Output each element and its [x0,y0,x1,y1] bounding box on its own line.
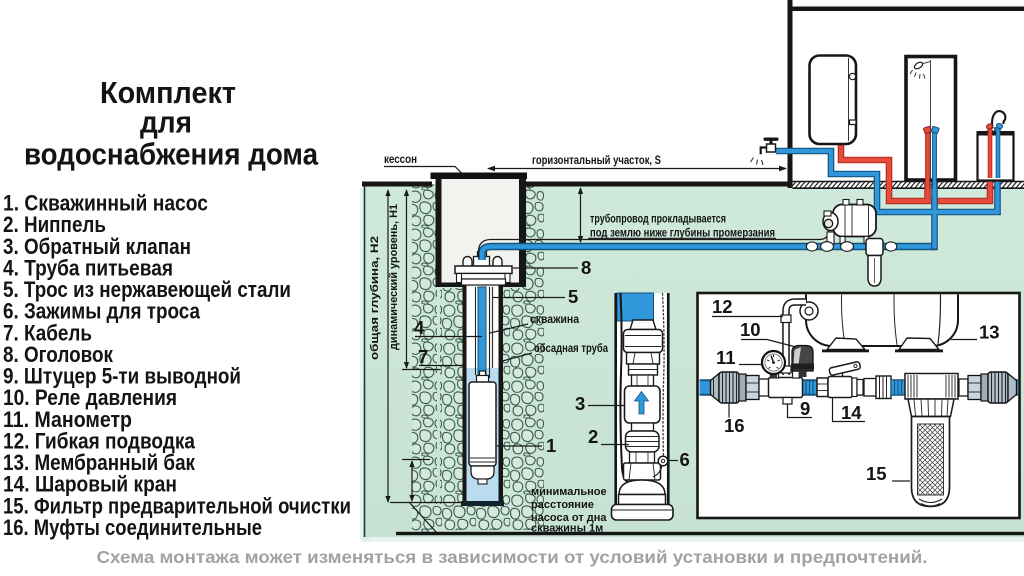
svg-text:8: 8 [581,257,591,278]
svg-text:3: 3 [575,393,585,414]
svg-text:7: 7 [418,346,428,367]
svg-text:трубопровод прокладывается: трубопровод прокладывается [590,214,726,226]
svg-text:Схема монтажа может изменяться: Схема монтажа может изменяться в зависим… [97,547,928,567]
svg-text:динамический уровень, Н1: динамический уровень, Н1 [388,204,400,350]
svg-text:горизонтальный участок, S: горизонтальный участок, S [532,155,661,167]
svg-text:4: 4 [414,317,425,338]
svg-text:9: 9 [800,398,810,419]
svg-text:6: 6 [680,449,690,470]
svg-text:1: 1 [546,435,556,456]
svg-text:обсадная труба: обсадная труба [534,343,608,355]
svg-text:16: 16 [724,415,745,436]
svg-text:общая глубина, Н2: общая глубина, Н2 [369,236,381,360]
svg-text:для: для [140,105,192,140]
svg-text:водоснабжения дома: водоснабжения дома [24,137,319,172]
svg-text:12: 12 [712,296,733,317]
svg-text:14: 14 [841,402,862,423]
svg-text:16. Муфты соединительные: 16. Муфты соединительные [3,515,262,540]
svg-text:13: 13 [979,322,1000,343]
svg-text:кессон: кессон [384,154,417,166]
svg-text:скважина: скважина [530,314,580,326]
svg-text:расстояние: расстояние [531,499,594,511]
svg-text:10: 10 [740,319,761,340]
svg-text:5: 5 [568,286,578,307]
svg-text:11: 11 [716,347,736,368]
svg-text:минимальное: минимальное [531,486,607,498]
svg-text:15: 15 [866,463,887,484]
svg-text:2: 2 [588,426,598,447]
